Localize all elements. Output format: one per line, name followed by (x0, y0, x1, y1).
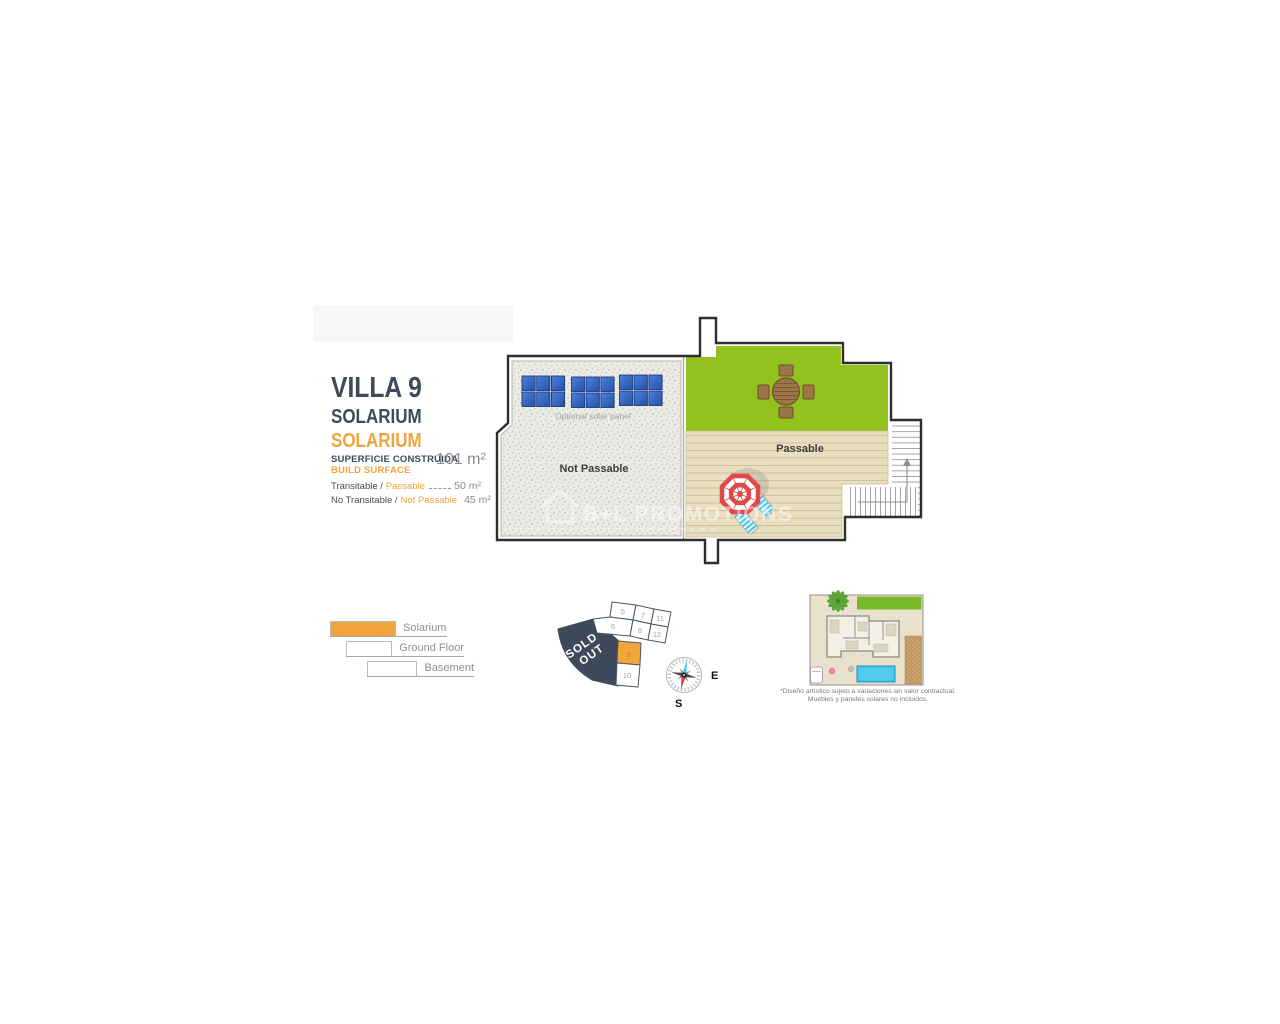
car-icon (811, 667, 823, 683)
disclaimer-line1: *Diseño artístico sujeto a variaciones s… (780, 688, 956, 695)
area-label-es: Transitable / (331, 481, 383, 492)
house-outline (827, 616, 899, 657)
solar-panel-label: Optional solar panel (555, 411, 631, 421)
legend-label: Solarium (403, 622, 446, 635)
legend-item-basement: Basement (367, 661, 474, 677)
subtitle-en: SOLARIUM (331, 431, 422, 451)
plot-map: 5 7 11 6 8 12 9 10 SOLD OUT (550, 590, 725, 715)
floor-plan: Optional solar panel Not Passable Passab… (490, 300, 930, 575)
subtitle-es: SOLARIUM (331, 407, 422, 427)
area-value: 50 m² (454, 480, 481, 492)
area-label-es: No Transitable / (331, 495, 398, 506)
plot-number: 7 (641, 611, 645, 620)
surface-label-en: BUILD SURFACE (331, 465, 411, 476)
dotted-leader (429, 487, 451, 489)
plot-number: 12 (653, 630, 661, 639)
disclaimer-line2: Muebles y paneles solares no incluidos. (808, 696, 928, 703)
area-label-en: Passable (386, 481, 425, 492)
area-value: 45 m² (464, 494, 491, 506)
plot-number-highlighted: 9 (627, 650, 631, 659)
legend-swatch-solarium (330, 621, 396, 636)
legend-swatch-basement (367, 661, 417, 676)
not-passable-label: Not Passable (559, 463, 628, 475)
faint-header-block (313, 305, 513, 341)
pool-water (859, 668, 893, 680)
plot-number: 8 (638, 626, 642, 635)
plot-number: 5 (621, 607, 625, 616)
area-row-no-transitable: No Transitable / Not Passable 45 m² (331, 494, 481, 506)
compass-east-label: E (711, 670, 718, 682)
plot-number: 10 (623, 671, 631, 680)
passable-label: Passable (776, 443, 824, 455)
garden-chair-icon (848, 666, 854, 672)
compass-south-label: S (675, 698, 682, 710)
surface-value: 101 m² (436, 451, 486, 469)
compass-rose: E S (667, 658, 719, 711)
legend-item-ground-floor: Ground Floor (346, 641, 464, 657)
plot-number: 6 (611, 622, 615, 631)
watermark-text: B+L PROMOTIONS (583, 503, 793, 526)
legend-swatch-ground-floor (346, 641, 392, 656)
page: VILLA 9 SOLARIUM SOLARIUM SUPERFICIE CON… (0, 0, 1280, 1024)
legend-label: Basement (424, 662, 474, 675)
area-label-en: Not Passable (401, 495, 458, 506)
plot-number: 11 (656, 614, 664, 623)
site-grass-strip (857, 597, 922, 610)
pink-plant-icon (829, 668, 836, 675)
page-title: VILLA 9 (331, 374, 422, 403)
site-wood-deck (905, 636, 922, 684)
legend-item-solarium: Solarium (330, 621, 447, 637)
site-thumbnail: *Diseño artístico sujeto a variaciones s… (765, 585, 975, 705)
area-row-transitable: Transitable / Passable 50 m² (331, 480, 481, 492)
legend-label: Ground Floor (399, 642, 464, 655)
